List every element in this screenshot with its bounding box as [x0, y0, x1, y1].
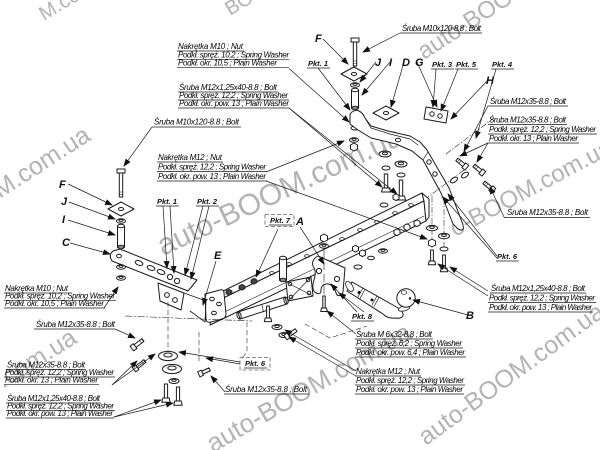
svg-text:Pkt. 4: Pkt. 4 [492, 60, 513, 69]
svg-text:Śruba M12x35-8.8 ; Bolt: Śruba M12x35-8.8 ; Bolt [36, 320, 116, 329]
svg-text:I: I [62, 214, 66, 226]
svg-text:Śruba M10x120-8.8 ; Bolt: Śruba M10x120-8.8 ; Bolt [154, 118, 240, 127]
svg-text:Pkt. 2: Pkt. 2 [197, 197, 218, 206]
svg-text:Podkł. okr. 13 ; Plain Washer: Podkł. okr. 13 ; Plain Washer [489, 134, 578, 143]
svg-text:C: C [62, 237, 71, 249]
svg-text:Śruba M 6x32-8.8 ; Bolt: Śruba M 6x32-8.8 ; Bolt [356, 330, 433, 339]
svg-text:Pkt. 8: Pkt. 8 [352, 312, 373, 321]
svg-text:B: B [466, 310, 474, 322]
svg-text:Podkł. okr. pow. 13 ; Plain Wa: Podkł. okr. pow. 13 ; Plain Washer [158, 172, 266, 181]
svg-text:Pkt. 6: Pkt. 6 [497, 252, 518, 261]
svg-text:Podkł. spręż. 6,2 ; Spring Was: Podkł. spręż. 6,2 ; Spring Washer [356, 339, 462, 348]
svg-text:Śruba M12x35-8.8 ; Bolt: Śruba M12x35-8.8 ; Bolt [489, 116, 567, 125]
svg-text:Podkł. okr. 10,5 ; Plain Washe: Podkł. okr. 10,5 ; Plain Washer [178, 58, 277, 67]
svg-text:Nakrętka M12 ; Nut: Nakrętka M12 ; Nut [356, 367, 421, 376]
svg-text:E: E [214, 250, 222, 262]
svg-text:G: G [415, 57, 424, 69]
svg-text:Pkt. 1: Pkt. 1 [157, 197, 177, 206]
svg-text:D: D [402, 57, 410, 69]
svg-text:I: I [389, 57, 393, 69]
svg-text:Podkł. spręż. 12,2 ; Spring Wa: Podkł. spręż. 12,2 ; Spring Washer [158, 163, 266, 172]
svg-text:Śruba M12x35-8.8 ; Bolt: Śruba M12x35-8.8 ; Bolt [507, 208, 589, 217]
svg-text:Podkł. okr. pow. 13 ; Plain Wa: Podkł. okr. pow. 13 ; Plain Washer [489, 303, 592, 312]
svg-text:Podkł. spręż. 12,2 ; Spring Wa: Podkł. spręż. 12,2 ; Spring Washer [489, 294, 595, 303]
svg-text:H: H [486, 75, 495, 87]
svg-text:Podkł. spręż. 12,2 ; Spring Wa: Podkł. spręż. 12,2 ; Spring Washer [356, 376, 464, 385]
svg-text:Śruba M10x120-8.8 ; Bolt: Śruba M10x120-8.8 ; Bolt [402, 24, 482, 33]
svg-text:J: J [61, 196, 68, 208]
svg-text:M.com.ua: M.com.ua [35, 0, 122, 25]
svg-text:Nakrętka M12 ; Nut: Nakrętka M12 ; Nut [158, 153, 223, 162]
svg-text:Pkt. 5: Pkt. 5 [456, 60, 477, 69]
svg-text:F: F [59, 179, 66, 191]
svg-text:Pkt. 3: Pkt. 3 [432, 60, 453, 69]
svg-text:A: A [295, 216, 304, 228]
svg-text:Pkt. 7: Pkt. 7 [270, 216, 291, 225]
svg-text:F: F [315, 33, 322, 45]
svg-text:Śruba M12x35-8.8 ; Bolt: Śruba M12x35-8.8 ; Bolt [490, 97, 567, 106]
svg-text:M.com.ua: M.com.ua [0, 121, 95, 204]
svg-text:Podkł. okr. pow. 6,4 ; Plain W: Podkł. okr. pow. 6,4 ; Plain Washer [356, 348, 465, 357]
svg-text:Podkł. spręż. 12,2 ; Spring Wa: Podkł. spręż. 12,2 ; Spring Washer [489, 125, 596, 134]
svg-text:auto-BOOM.com.ua: auto-BOOM.com.ua [413, 297, 600, 450]
svg-text:J: J [375, 57, 382, 69]
svg-text:Śruba M12x1,25x40-8.8 ; Bolt: Śruba M12x1,25x40-8.8 ; Bolt [491, 284, 586, 293]
svg-text:Podkł. okr. pow. 13 ; Plain Wa: Podkł. okr. pow. 13 ; Plain Washer [356, 385, 463, 394]
svg-text:Pkt. 6: Pkt. 6 [245, 359, 266, 368]
svg-text:Pkt. 1: Pkt. 1 [308, 59, 328, 68]
svg-text:BOOM: BOOM [221, 0, 285, 20]
svg-text:Śruba M12x35-8.8 ; Bolt: Śruba M12x35-8.8 ; Bolt [225, 385, 308, 394]
